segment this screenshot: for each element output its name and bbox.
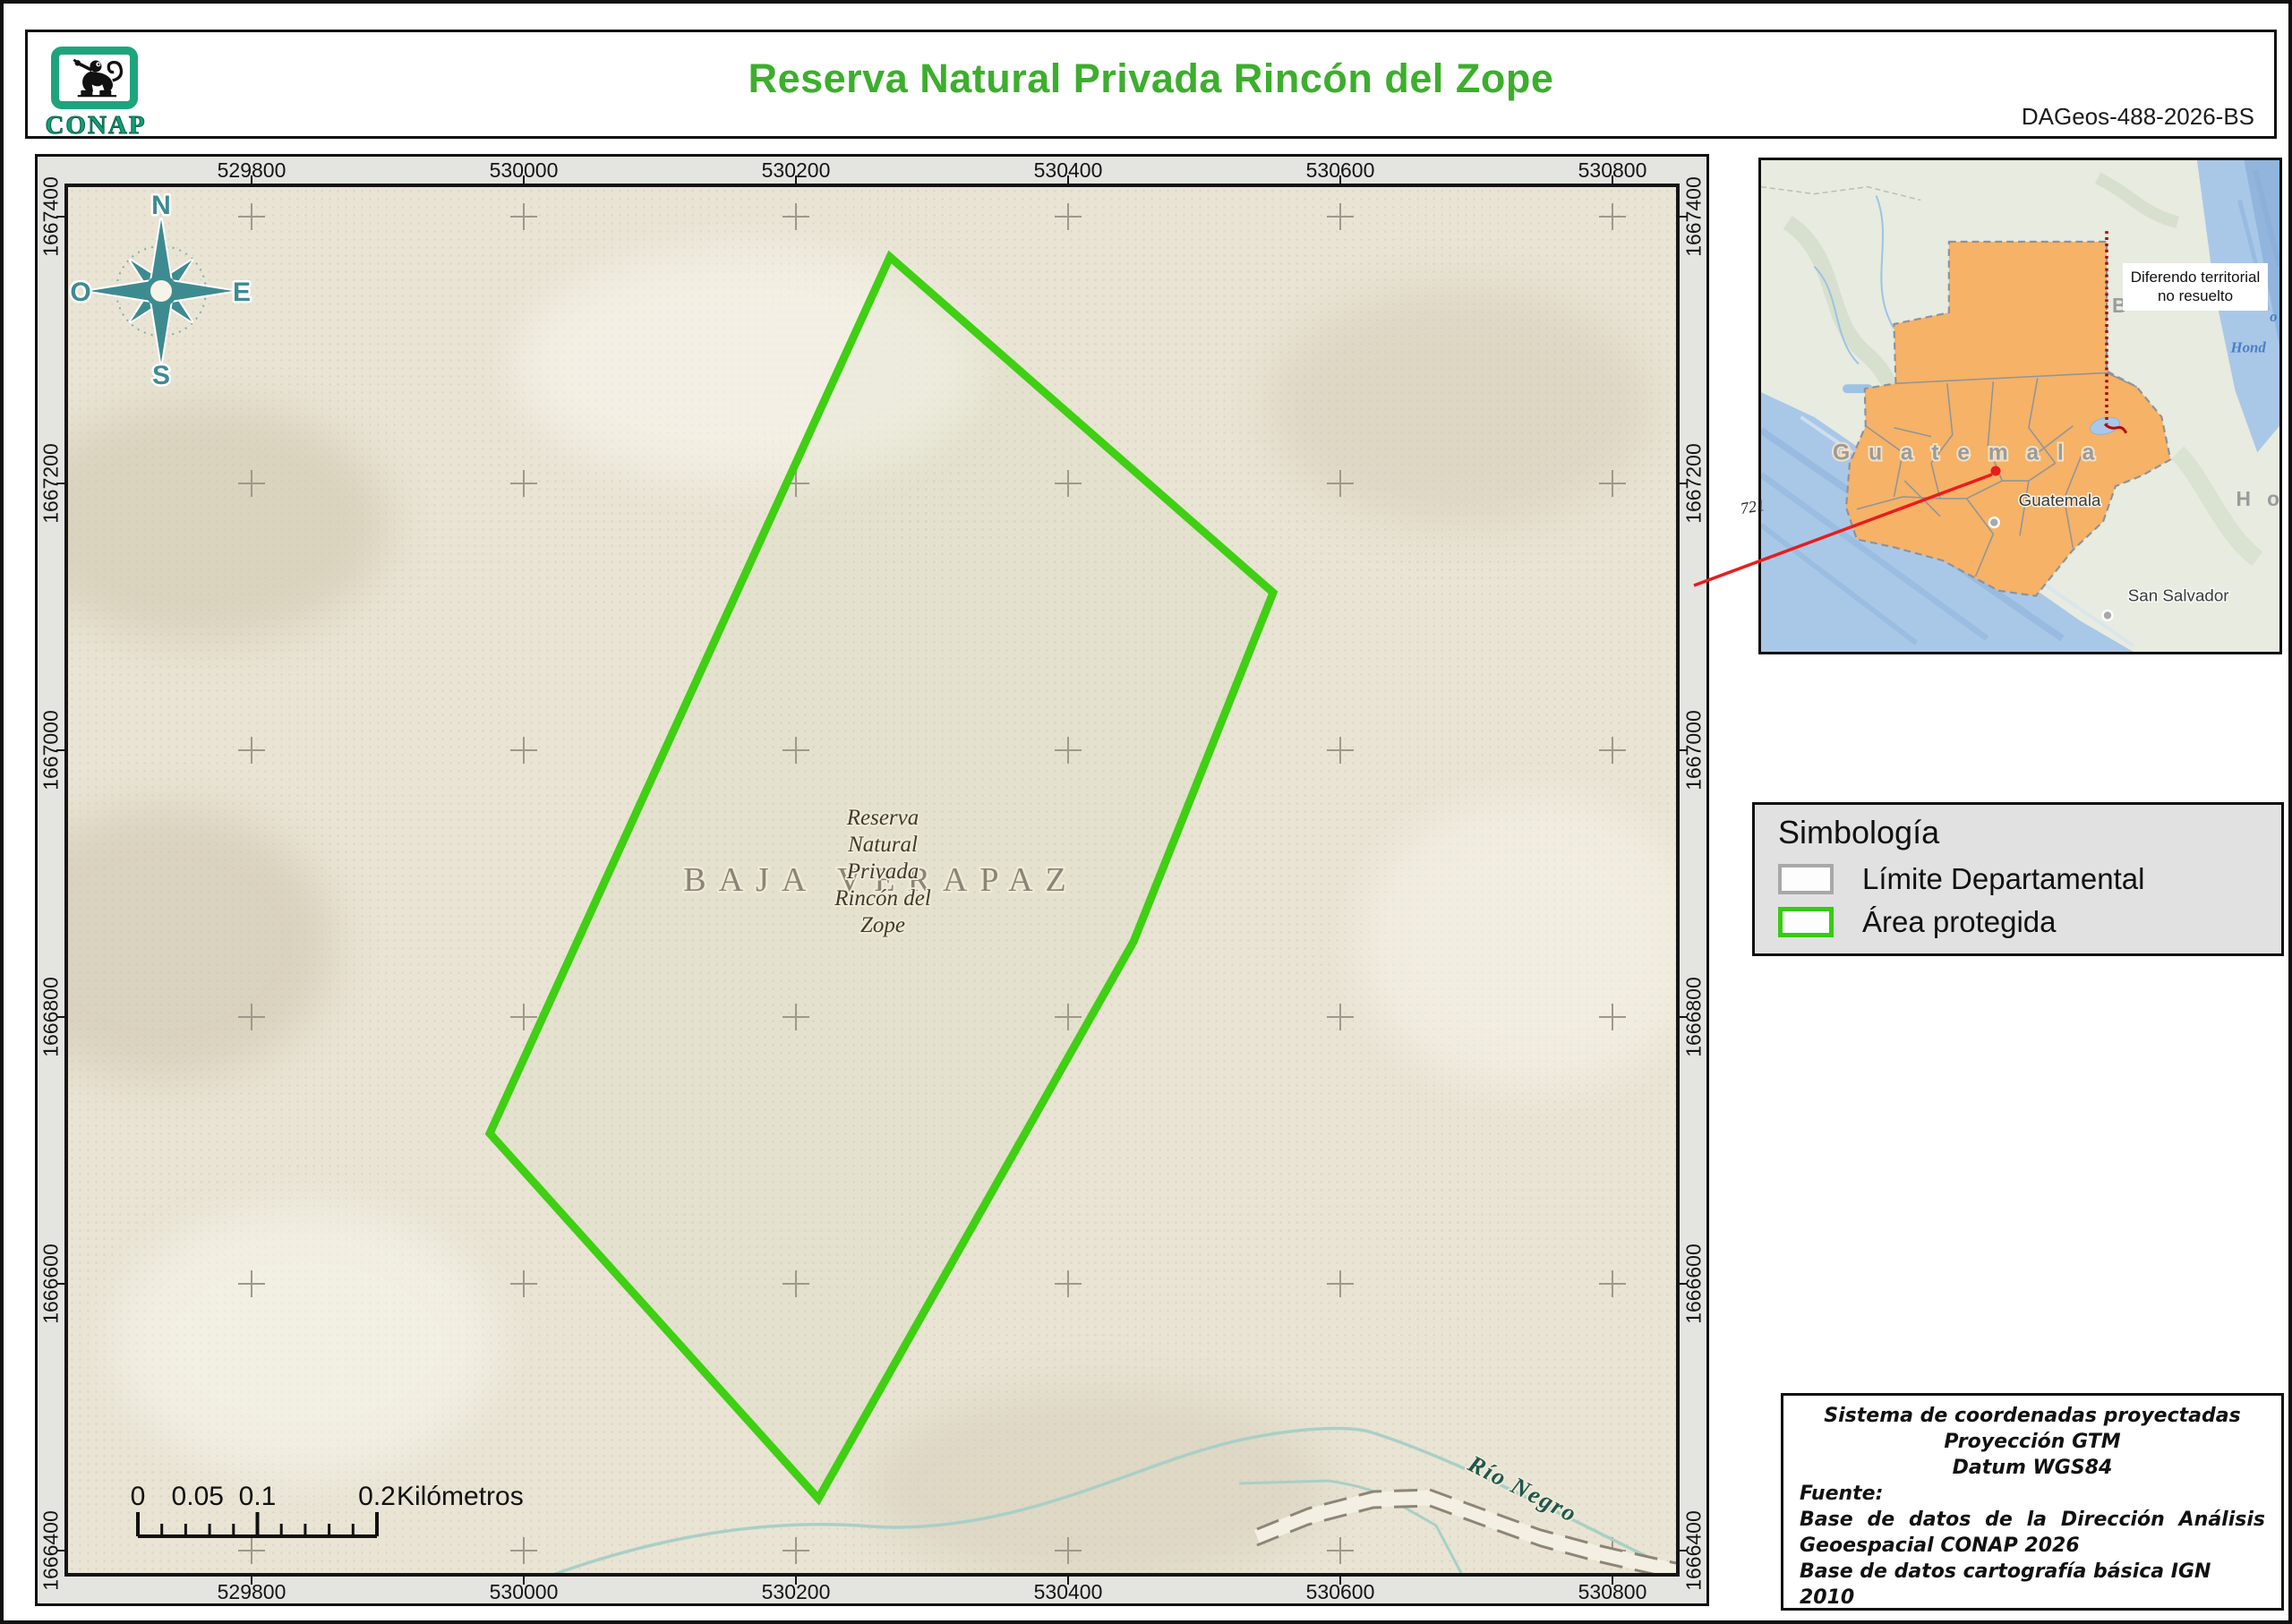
grid-tick [1680,749,1688,751]
map-sheet: CONAP Reserva Natural Privada Rincón del… [0,0,2292,1624]
credits-box: Sistema de coordenadas proyectadas Proye… [1781,1393,2284,1611]
scale-bar-label: Kilómetros [397,1482,524,1511]
legend-item-label: Límite Departamental [1862,862,2144,896]
compass-rose-icon: N E S O [70,191,251,390]
departmental-boundary-swatch [1778,864,1834,894]
reserve-label-line: Zope [860,913,905,937]
grid-tick [523,1577,525,1585]
grid-tick [1067,1577,1069,1585]
grid-tick [1612,1577,1613,1585]
grid-tick [1339,175,1341,184]
grid-tick [1680,1283,1688,1285]
grid-tick [1612,175,1613,184]
grid-tick [1680,1016,1688,1018]
legend-item-departmental: Límite Departamental [1778,862,2258,896]
map-canvas: BAJA VERAPAZ ReservaNaturalPrivadaRincón… [68,187,1676,1573]
source-line: Base de datos de la Dirección Análisis G… [1800,1507,2265,1559]
grid-tick [795,175,797,184]
compass-south-label: S [152,361,170,390]
road-ref-label: 721 [1740,496,1766,518]
grid-tick [56,1016,64,1018]
map-inner-frame: BAJA VERAPAZ ReservaNaturalPrivadaRincón… [64,184,1680,1577]
map-drawing: BAJA VERAPAZ ReservaNaturalPrivadaRincón… [68,187,1676,1573]
grid-tick [56,1283,64,1285]
header-box: CONAP Reserva Natural Privada Rincón del… [25,30,2277,139]
compass-north-label: N [151,191,171,220]
reserve-label-line: Rincón del [834,886,931,910]
map-frame: BAJA VERAPAZ ReservaNaturalPrivadaRincón… [35,154,1709,1606]
scale-bar-label: 0 [131,1482,146,1511]
grid-tick [56,216,64,218]
scale-bar-label: 0.05 [172,1482,224,1511]
legend-item-protected: Área protegida [1778,905,2258,939]
reserve-label-line: Natural [847,833,918,857]
source-heading: Fuente: [1800,1481,2265,1507]
legend-item-label: Área protegida [1862,905,2056,939]
grid-tick [1067,175,1069,184]
grid-tick [251,1577,252,1585]
capital-city-dot [1989,517,1999,527]
scale-bar-label: 0.1 [239,1482,277,1511]
grid-tick [251,175,252,184]
legend: Simbología Límite Departamental Área pro… [1752,802,2284,956]
grid-tick [56,1550,64,1551]
inset-map: B G u a t e m a l a Guatemala San Salvad… [1761,160,2279,652]
reserve-label-line: Privada [846,859,919,884]
scale-bar-label: 0.2 [358,1482,396,1511]
document-id: DAGeos-488-2026-BS [2022,103,2254,131]
projection-line: Datum WGS84 [1800,1455,2265,1481]
locator-inset-panel: B G u a t e m a l a Guatemala San Salvad… [1758,158,2282,654]
page-title: Reserva Natural Privada Rincón del Zope [28,56,2274,102]
water-label-fragment: o [2270,308,2277,325]
grid-tick [1339,1577,1341,1585]
scale-bar: 00.050.10.2Kilómetros [131,1482,524,1536]
country-label: G u a t e m a l a [1833,440,2100,465]
projection-line: Proyección GTM [1800,1429,2265,1455]
compass-west-label: O [70,278,90,307]
territorial-note: Diferendo territorial no resuelto [2123,263,2268,311]
protected-area-swatch [1778,907,1834,937]
grid-tick [56,749,64,751]
honduras-label-fragment: H o [2236,487,2279,510]
grid-tick [523,175,525,184]
road-fill [1257,1498,1676,1571]
source-line: Base de datos cartografía básica IGN 201… [1800,1559,2265,1611]
grid-tick [1680,216,1688,218]
grid-tick [795,1577,797,1585]
grid-tick [1680,1550,1688,1551]
san-salvador-dot [2103,611,2113,620]
water-label-fragment: Hond [2230,339,2267,356]
capital-city-label: Guatemala [2019,491,2101,509]
grid-tick [56,483,64,484]
reserve-label-line: Reserva [846,806,919,830]
conap-logo-text: CONAP [42,111,150,141]
legend-title: Simbología [1778,814,2258,851]
grid-tick [1680,483,1688,484]
river-path [548,1428,1676,1573]
san-salvador-label: San Salvador [2128,586,2229,605]
compass-east-label: E [233,278,251,307]
projection-line: Sistema de coordenadas proyectadas [1800,1403,2265,1429]
